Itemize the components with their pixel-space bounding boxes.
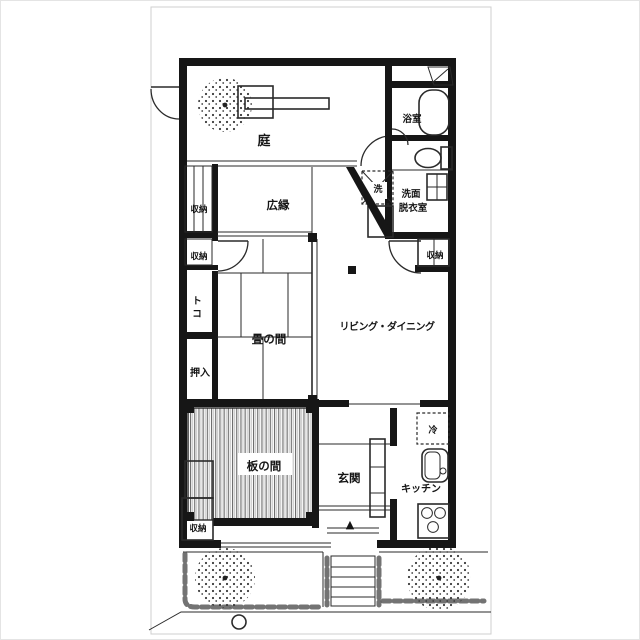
entrance-label: 玄関: [338, 471, 361, 485]
street-line: [149, 612, 491, 630]
washer-label: 洗: [373, 183, 382, 195]
bathroom-label: 浴室: [402, 113, 422, 125]
garden-bench: [245, 98, 329, 109]
front-garden: [149, 546, 491, 630]
closet-label: 押入: [190, 366, 210, 379]
tatami-mats: [217, 239, 312, 399]
garden-label: 庭: [257, 133, 271, 149]
washroom-label-line1: 洗面: [401, 188, 421, 200]
toko-label-2: コ: [192, 309, 202, 320]
bathtub: [419, 90, 449, 135]
garden-room: [151, 64, 392, 167]
living-dining-room: [312, 266, 456, 407]
floor-plan-drawing: 庭 浴室 洗 洗面 脱衣室 広縁 収納 収納 収納 ト コ 畳の間 リビング・ダ…: [1, 1, 640, 640]
storage1-label: 収納: [190, 204, 207, 215]
faucet: [440, 468, 446, 474]
floor-plan-image: 庭 浴室 洗 洗面 脱衣室 広縁 収納 収納 収納 ト コ 畳の間 リビング・ダ…: [0, 0, 640, 640]
wood-floor-room-label: 板の間: [247, 459, 282, 473]
entrance-arrow-marker: ▲: [346, 518, 355, 531]
refrigerator-label: 冷: [428, 424, 437, 436]
tatami-room-label: 畳の間: [252, 332, 287, 346]
living-dining-label: リビング・ダイニング: [340, 320, 435, 333]
gate-door-arc: [151, 89, 179, 119]
storage-right-label: 収納: [426, 250, 443, 261]
toilet-bowl: [415, 149, 441, 168]
shoe-cabinet: [370, 439, 385, 517]
right-storage: [389, 239, 456, 273]
storage-bottom-label: 収納: [189, 523, 206, 534]
veranda-label: 広縁: [267, 198, 290, 212]
entry-steps: [327, 556, 379, 606]
storage2-label: 収納: [190, 251, 207, 262]
storage2-door-arc: [218, 241, 248, 271]
washroom-label-line2: 脱衣室: [399, 202, 428, 214]
left-column: [179, 164, 248, 402]
post-marker: [348, 266, 356, 274]
manhole: [232, 615, 246, 629]
toko-label-1: ト: [192, 296, 202, 307]
kitchen-label: キッチン: [401, 483, 441, 495]
